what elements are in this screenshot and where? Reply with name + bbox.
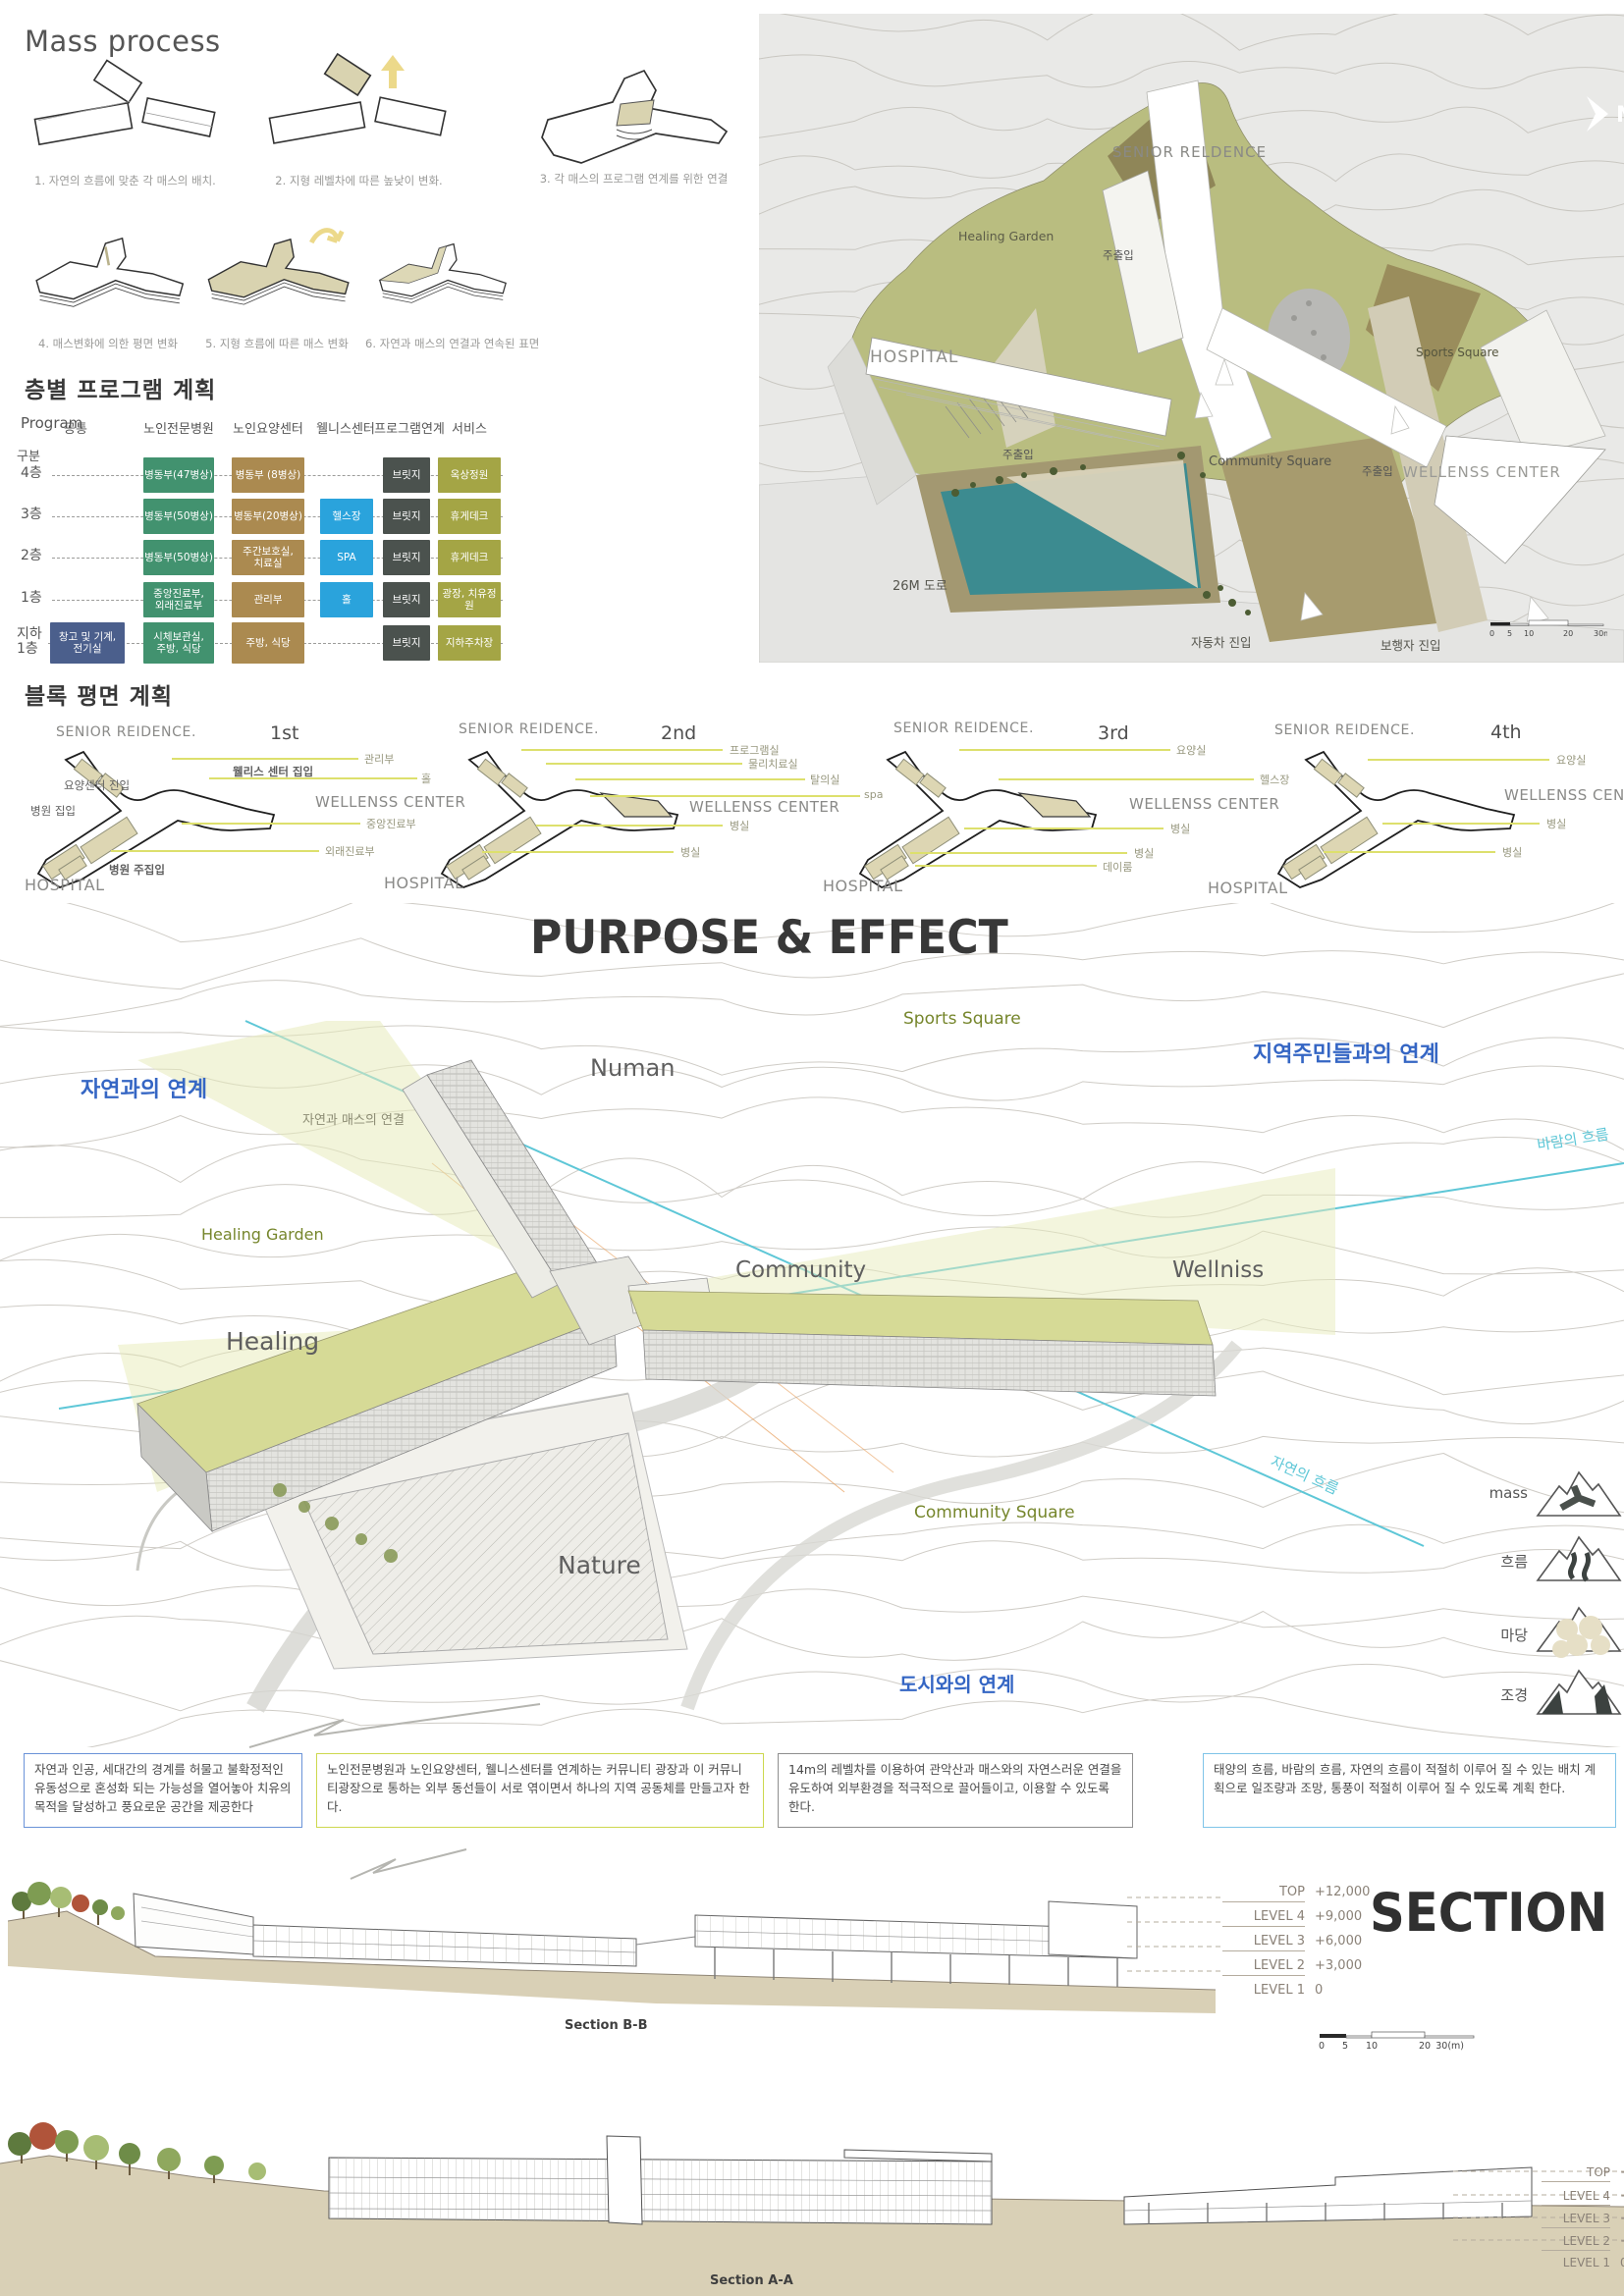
cell-hospital: 병동부(50병상) [143, 540, 214, 575]
callout-label: 요양실 [1556, 752, 1586, 768]
table-corner-gubun: 구분 [17, 446, 40, 464]
legend-label-landscape: 조경 [1471, 1684, 1528, 1705]
callout-label: 중앙진료부 [366, 816, 416, 831]
up-arrow-icon [381, 55, 405, 88]
cell-hospital: 중앙진료부, 외래진료부 [143, 582, 214, 617]
mass-process-title: Mass process [25, 25, 221, 58]
plan-wellness-label: WELLENSS CENTER [689, 798, 839, 816]
site-plan-title-bold: SITE [1164, 0, 1282, 10]
col-header-wellness: 웰니스센터 [316, 418, 375, 437]
callout-label: 관리부 [364, 751, 394, 767]
col-header-common: 공통 [64, 418, 87, 437]
callout-label: 병실 [1134, 845, 1154, 861]
level-row: TOP+12,000 [1222, 1885, 1370, 1902]
level-row: LEVEL 4+9,000 [1222, 1909, 1362, 1927]
cell-care: 주방, 식당 [232, 622, 304, 664]
cell-hospital: 병동부(47병상) [143, 457, 214, 493]
plan-senior-label: SENIOR REIDENCE. [893, 721, 1034, 736]
legend-label-flow: 흐름 [1471, 1551, 1528, 1572]
callout-label: 요양실 [1176, 742, 1206, 758]
site-drawing [759, 14, 1624, 663]
cell-service: 휴게데크 [438, 499, 501, 534]
svg-text:5: 5 [1342, 2041, 1348, 2052]
cell-common: 창고 및 기계, 전기실 [50, 622, 125, 664]
level-row: LEVEL 4+9,000 [1542, 2189, 1624, 2206]
svg-text:20: 20 [1563, 629, 1573, 638]
cell-service: 휴게데크 [438, 540, 501, 575]
site-label-entry-mid: 주출입 [1002, 447, 1034, 462]
mass-step-4-diagram [20, 224, 196, 334]
floor-label: 4층 [21, 466, 42, 481]
col-header-bridge: 프로그램연계 [374, 418, 445, 437]
site-label-entry-top: 주출입 [1103, 247, 1134, 263]
mid-building [329, 2136, 992, 2224]
section-aa-label: Section A-A [710, 2273, 793, 2288]
plan-wellness-label: WELLENSS CENTER [1504, 786, 1624, 804]
svg-text:20: 20 [1419, 2041, 1431, 2052]
site-label-hospital: HOSPITAL [870, 347, 958, 367]
presentation-board: Mass process [0, 0, 1624, 2296]
callout-label: 병실 [680, 844, 700, 860]
block-plan-4th: SENIOR REIDENCE. 4th 요양실 WELLENSS CENTER… [1265, 715, 1624, 911]
callout-label: 병실 [1502, 844, 1522, 860]
plan-hospital-label: HOSPITAL [1208, 879, 1288, 897]
site-label-entry-right: 주출입 [1362, 463, 1393, 479]
section-bb-label: Section B-B [565, 2018, 647, 2033]
callout-label: 병원 주집입 [109, 862, 165, 878]
callout-label: 병원 집입 [30, 803, 76, 819]
site-scale-bar: 0 5 10 20 30m [1489, 616, 1607, 640]
callout-label: 외래진료부 [325, 843, 375, 859]
cell-care: 관리부 [232, 582, 304, 617]
block-plan-drawing [846, 744, 1121, 891]
site-plan-title: SITE PLAN [1164, 0, 1425, 10]
site-label-healing-garden: Healing Garden [958, 229, 1054, 243]
mass-step-1-diagram [25, 54, 226, 172]
note-box-3: 14m의 레벨차를 이용하여 관악산과 매스와의 자연스러운 연결을 유도하여 … [778, 1753, 1133, 1828]
label-nature-mass: 자연과 매스의 연결 [302, 1109, 405, 1128]
mass-step-5-diagram [192, 214, 361, 334]
level-row: LEVEL 10 [1542, 2256, 1624, 2271]
leader-arrow [245, 1700, 550, 1751]
plan-senior-label: SENIOR REIDENCE. [459, 721, 599, 737]
callout-label: 데이룸 [1103, 859, 1132, 875]
svg-text:10: 10 [1366, 2041, 1378, 2052]
site-label-car-entry: 자동차 진입 [1191, 632, 1251, 651]
block-plan-title: 블록 평면 계획 [25, 677, 173, 711]
svg-text:5: 5 [1507, 629, 1512, 638]
cell-hospital: 병동부(50병상) [143, 499, 214, 534]
level-row: LEVEL 2+3,000 [1222, 1958, 1362, 1976]
block-plan-3rd: SENIOR REIDENCE. 3rd 요양실 헬스장 WELLENSS CE… [846, 715, 1259, 911]
cell-service: 옥상정원 [438, 457, 501, 493]
callout-label: 물리치료실 [748, 756, 798, 772]
cell-service: 광장, 치유정원 [438, 582, 501, 617]
legend-landscape-icon [1534, 1663, 1624, 1720]
legend-flow-icon [1534, 1529, 1624, 1586]
level-row: LEVEL 2+3,000 [1542, 2234, 1624, 2251]
plan-floor-label: 4th [1490, 721, 1522, 743]
curve-arrow-icon [311, 231, 342, 242]
label-sports-square: Sports Square [903, 1009, 1021, 1029]
label-community-link: 지역주민들과의 연계 [1253, 1037, 1439, 1068]
cell-wellness: SPA [320, 540, 373, 575]
plan-floor-label: 3rd [1098, 722, 1129, 744]
cell-care: 병동부(20병상) [232, 499, 304, 534]
level-row: TOP+12,000 [1542, 2165, 1624, 2182]
mass-step-5-caption: 5. 지형 흐름에 따른 매스 변화 [192, 336, 361, 351]
program-plan-title: 층별 프로그램 계획 [25, 371, 216, 404]
floor-label: 1층 [21, 591, 42, 606]
section-bb-drawing [8, 1860, 1314, 2056]
block-plan-2nd: SENIOR REIDENCE. 2nd 프로그램실 물리치료실 탈의실 spa… [428, 715, 840, 911]
section-scale-bar: 0 5 10 20 30(m) [1319, 2026, 1481, 2052]
plan-floor-label: 2nd [661, 722, 696, 744]
svg-text:N: N [1616, 103, 1624, 128]
legend-mass-icon [1534, 1465, 1624, 1522]
floor-label: 3층 [21, 507, 42, 522]
mass-step-3-diagram [518, 61, 749, 177]
floor-label: 2층 [21, 549, 42, 563]
label-nature-link: 자연과의 연계 [81, 1072, 207, 1103]
svg-text:30m: 30m [1594, 629, 1607, 638]
plan-hospital-label: HOSPITAL [384, 874, 464, 892]
col-header-hospital: 노인전문병원 [143, 418, 214, 437]
mass-step-3-caption: 3. 각 매스의 프로그램 연계를 위한 연결 [518, 171, 749, 187]
cell-wellness: 홀 [320, 582, 373, 617]
callout-label: 병실 [1546, 816, 1566, 831]
cell-care: 병동부 (8병상) [232, 457, 304, 493]
site-label-sports-square: Sports Square [1416, 346, 1499, 359]
block-plan-drawing [1265, 744, 1540, 891]
cell-wellness: 헬스장 [320, 499, 373, 534]
label-community: Community [735, 1257, 866, 1283]
legend-madang-icon [1534, 1600, 1624, 1661]
mass-step-2-diagram [263, 49, 455, 172]
site-plan: SENIOR RELDENCE Healing Garden 주출입 HOSPI… [759, 14, 1624, 663]
mass-step-4-caption: 4. 매스변화에 의한 평면 변화 [20, 336, 196, 351]
purpose-title: PURPOSE & EFFECT [530, 911, 1008, 965]
svg-text:10: 10 [1524, 629, 1534, 638]
cell-bridge: 브릿지 [383, 582, 430, 617]
legend-label-mass: mass [1471, 1484, 1528, 1502]
plan-senior-label: SENIOR REIDENCE. [56, 724, 196, 740]
note-box-1: 자연과 인공, 세대간의 경계를 허물고 불확정적인 유동성으로 혼성화 되는 … [24, 1753, 302, 1828]
mass-step-6-diagram [365, 224, 517, 334]
svg-text:0: 0 [1489, 629, 1494, 638]
svg-text:30(m): 30(m) [1435, 2041, 1464, 2052]
north-arrow-icon: N [1579, 90, 1624, 139]
cell-service: 지하주차장 [438, 625, 501, 661]
label-healing: Healing [226, 1327, 319, 1356]
level-guides [1127, 1897, 1220, 1971]
label-city-link: 도시와의 연계 [899, 1669, 1014, 1697]
cell-bridge: 브릿지 [383, 499, 430, 534]
plan-hospital-label: HOSPITAL [25, 876, 105, 894]
plan-hospital-label: HOSPITAL [823, 877, 903, 895]
site-label-senior: SENIOR RELDENCE [1112, 143, 1267, 161]
cell-hospital: 시체보관실, 주방, 식당 [143, 622, 214, 664]
callout-label: 탈의실 [810, 772, 839, 787]
level-row: LEVEL 3+6,000 [1222, 1934, 1362, 1951]
cell-bridge: 브릿지 [383, 625, 430, 661]
plan-senior-label: SENIOR REIDENCE. [1274, 722, 1415, 738]
legend-label-madang: 마당 [1471, 1625, 1528, 1645]
block-plan-1st: SENIOR REIDENCE. 1st 관리부 웰리스 센터 집입 홀 요양센… [25, 715, 437, 911]
col-header-service: 서비스 [452, 418, 487, 437]
level-row: LEVEL 3+6,000 [1542, 2212, 1624, 2228]
section-title: SECTION [1370, 1882, 1607, 1944]
site-label-road: 26M 도로 [893, 575, 947, 594]
label-wellniss: Wellniss [1172, 1257, 1264, 1283]
floor-label: 지하 1층 [17, 627, 42, 658]
level-row: LEVEL 10 [1222, 1983, 1323, 2000]
mass-step-2-caption: 2. 지형 레벨차에 따른 높낮이 변화. [263, 173, 455, 188]
cell-bridge: 브릿지 [383, 457, 430, 493]
label-numan: Numan [590, 1054, 675, 1082]
cell-care: 주간보호실, 치료실 [232, 540, 304, 575]
section-aa-drawing [0, 2101, 1624, 2296]
note-box-2: 노인전문병원과 노인요양센터, 웰니스센터를 연계하는 커뮤니티 광장과 이 커… [316, 1753, 764, 1828]
callout-label: 병실 [730, 818, 749, 833]
mass-step-6-caption: 6. 자연과 매스의 연결과 연속된 표면 [365, 336, 517, 351]
plan-wellness-label: WELLENSS CENTER [1129, 795, 1279, 813]
site-plan-title-light: PLAN [1307, 0, 1425, 10]
cell-bridge: 브릿지 [383, 540, 430, 575]
label-nature: Nature [558, 1551, 641, 1579]
block-plan-drawing [428, 744, 703, 891]
svg-text:0: 0 [1319, 2041, 1325, 2052]
plan-floor-label: 1st [270, 722, 298, 744]
site-label-ped-entry: 보행자 진입 [1380, 635, 1440, 654]
site-label-wellness: WELLENSS CENTER [1403, 463, 1561, 481]
col-header-care: 노인요양센터 [233, 418, 303, 437]
note-box-4: 태양의 흐름, 바람의 흐름, 자연의 흐름이 적절히 이루어 질 수 있는 배… [1203, 1753, 1616, 1828]
callout-label: 병실 [1170, 821, 1190, 836]
label-healing-garden: Healing Garden [201, 1225, 324, 1244]
label-community-square: Community Square [914, 1503, 1075, 1522]
right-building [1124, 2167, 1532, 2224]
mass-step-1-caption: 1. 자연의 흐름에 맞춘 각 매스의 배치. [25, 173, 226, 188]
callout-label: 요양센터 진입 [64, 777, 130, 793]
program-table: Program 구분 공통 노인전문병원 노인요양센터 웰니스센터 프로그램연계… [15, 410, 511, 670]
site-label-community-square: Community Square [1209, 454, 1331, 469]
axonometric-rendering [79, 1021, 1335, 1728]
